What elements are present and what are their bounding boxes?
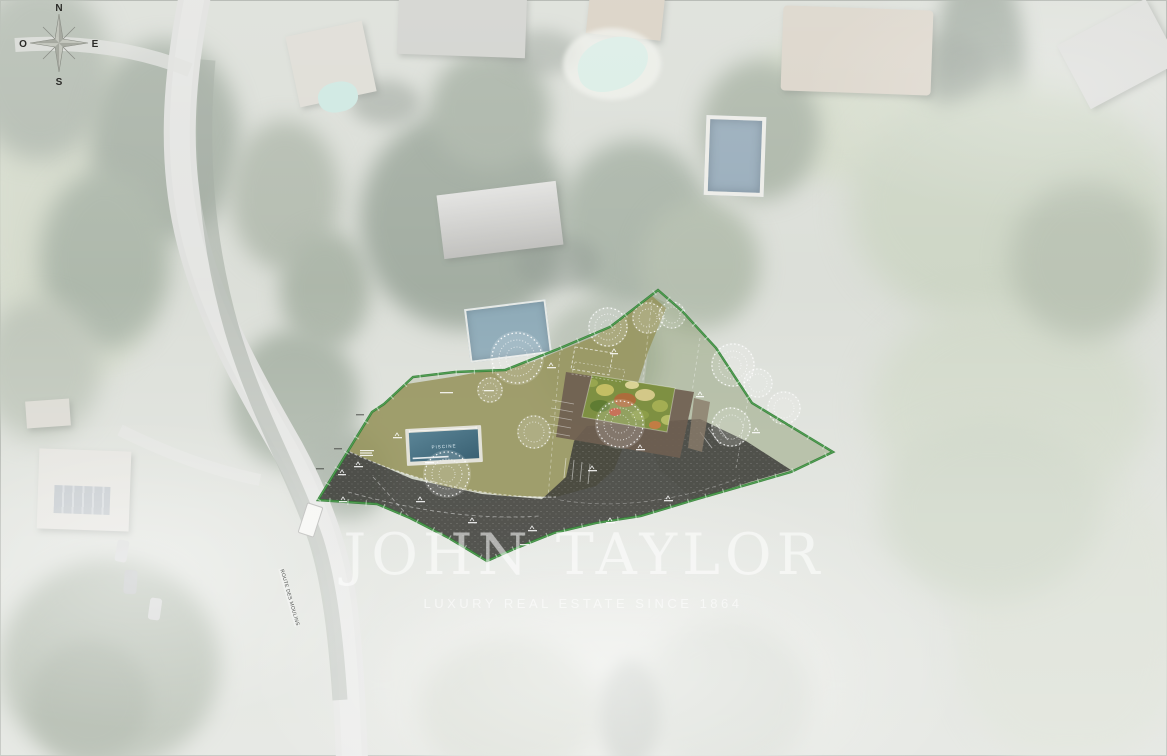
compass-rose: N E S O (10, 2, 120, 97)
tree-sketch (743, 368, 773, 398)
tree-sketch (517, 415, 551, 449)
aerial-map-canvas: PISCINE (0, 0, 1167, 756)
compass-east-label: E (92, 39, 99, 50)
compass-south-label: S (56, 77, 63, 88)
compass-north-label: N (55, 3, 62, 14)
tree-sketch (658, 301, 686, 329)
compass-west-label: O (19, 39, 27, 50)
site-plan-overlay: PISCINE (0, 0, 1167, 756)
tree-sketch (767, 391, 801, 425)
tree-sketch (423, 450, 471, 498)
tree-sketch (595, 399, 645, 449)
tree-sketch (711, 407, 751, 447)
